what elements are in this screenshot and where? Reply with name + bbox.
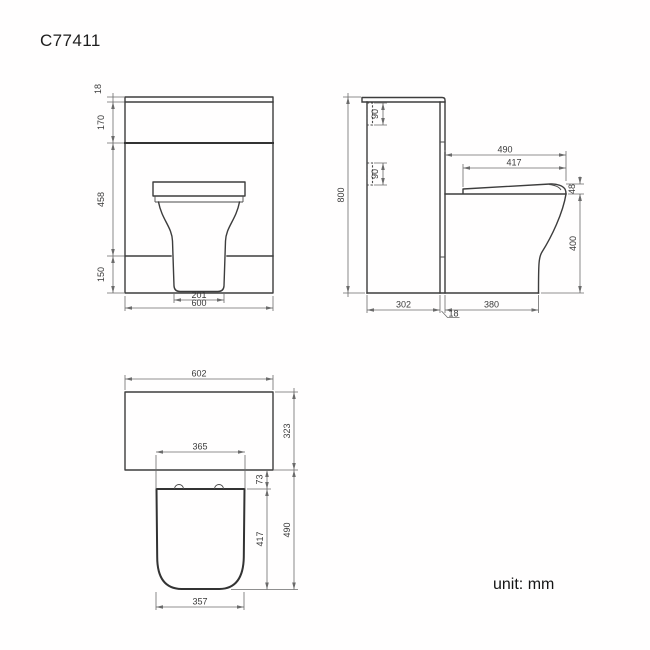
dim-unit-depth: 323 <box>282 423 292 438</box>
dim-panel-thickness: 18 <box>449 309 459 319</box>
front-view-dimensions: 18 170 458 150 201 600 <box>93 84 273 311</box>
dim-seat-thickness: 48 <box>567 184 577 194</box>
dimension-drawing: C77411 18 170 458 150 201 600 <box>0 0 650 650</box>
dim-plinth-height: 150 <box>96 267 106 282</box>
extension-lines <box>107 97 124 293</box>
dim-seat-depth: 417 <box>255 531 265 546</box>
extension-lines <box>445 150 566 187</box>
front-view: 18 170 458 150 201 600 <box>93 84 273 311</box>
front-view-outline <box>125 97 273 293</box>
cabinet-outline <box>125 97 273 293</box>
seat-base-band <box>155 196 243 202</box>
dim-hinge-depth: 73 <box>255 474 265 484</box>
dim-pan-projection: 380 <box>484 300 499 310</box>
dim-bracket-bottom: 90 <box>370 169 380 179</box>
unit-note: unit: mm <box>493 576 554 593</box>
drawing-sheet: C77411 18 170 458 150 201 600 <box>0 0 650 650</box>
dim-seat-length: 417 <box>506 158 521 168</box>
unit-front-panel <box>440 102 445 293</box>
toilet-pan-side <box>539 194 567 293</box>
panel-joint-ticks <box>440 142 445 257</box>
dim-overall-projection: 490 <box>282 522 292 537</box>
seat-back-lines <box>156 455 245 489</box>
dim-upper-height: 170 <box>96 115 106 130</box>
dim-overall-width: 602 <box>191 369 206 379</box>
plan-view: 602 365 323 490 73 417 357 <box>125 369 298 611</box>
dim-unit-depth: 302 <box>396 300 411 310</box>
product-code: C77411 <box>40 31 101 50</box>
dim-seat-back-width: 365 <box>192 442 207 452</box>
side-view: 800 90 90 490 417 48 400 302 380 <box>336 93 584 319</box>
worktop-side <box>362 98 445 103</box>
dim-middle-height: 458 <box>96 192 106 207</box>
dim-seat-front-width: 357 <box>192 597 207 607</box>
dim-pan-height: 400 <box>568 236 578 251</box>
side-view-outline <box>362 98 566 294</box>
toilet-pan-front <box>159 202 240 292</box>
dim-overall-width: 600 <box>191 298 206 308</box>
seat-lid-front <box>153 182 245 196</box>
dim-seat-overall: 490 <box>497 145 512 155</box>
extension-lines <box>343 93 365 297</box>
unit-plan-outline <box>125 392 273 470</box>
side-view-dimensions: 800 90 90 490 417 48 400 302 380 <box>336 93 584 319</box>
plan-view-outline <box>125 392 273 589</box>
dim-bracket-top: 90 <box>370 109 380 119</box>
dim-worktop-thickness: 18 <box>93 84 103 94</box>
seat-plan-outline <box>157 489 245 589</box>
dim-overall-height: 800 <box>336 187 346 202</box>
